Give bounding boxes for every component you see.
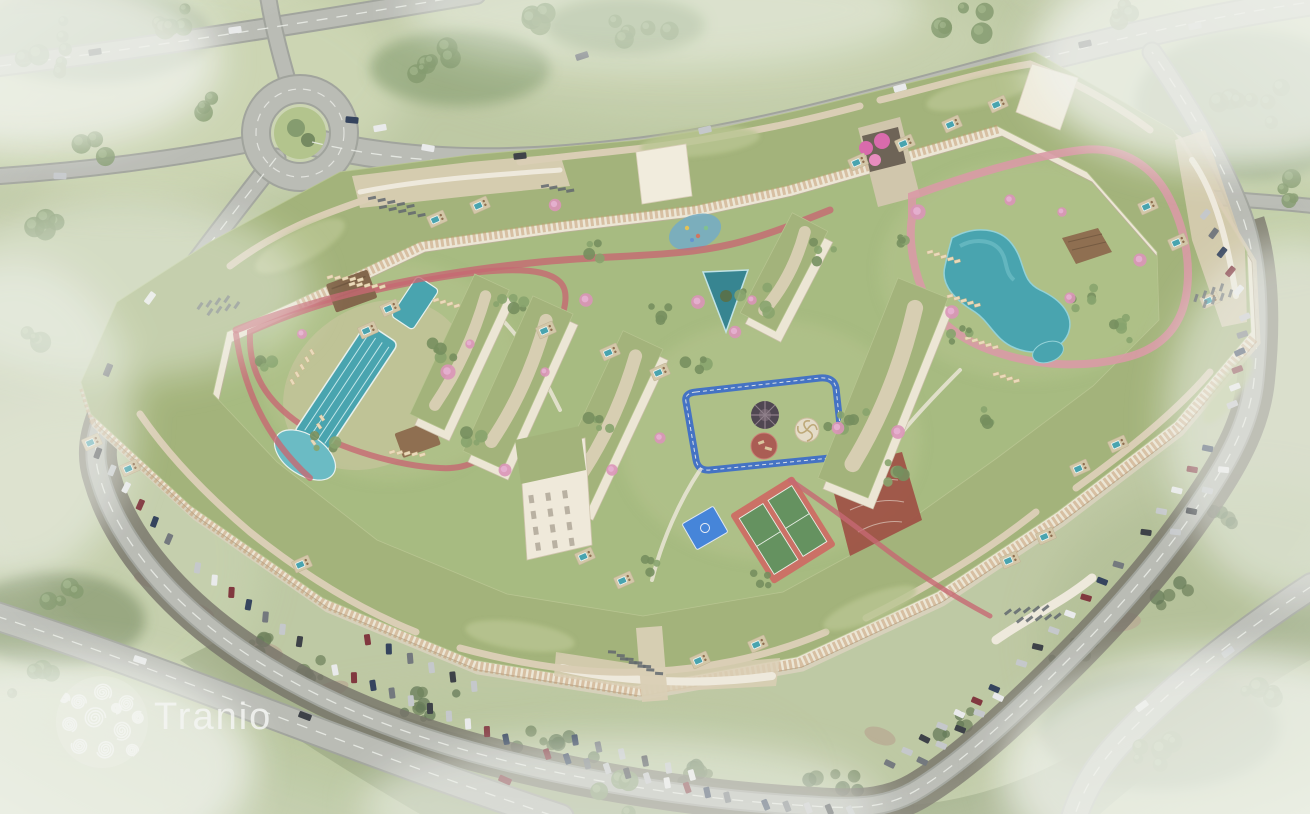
aerial-render: Tranio <box>0 0 1310 814</box>
scene-canvas: Tranio <box>0 0 1310 814</box>
watermark-text: Tranio <box>154 696 272 738</box>
light-wash <box>0 0 1310 814</box>
